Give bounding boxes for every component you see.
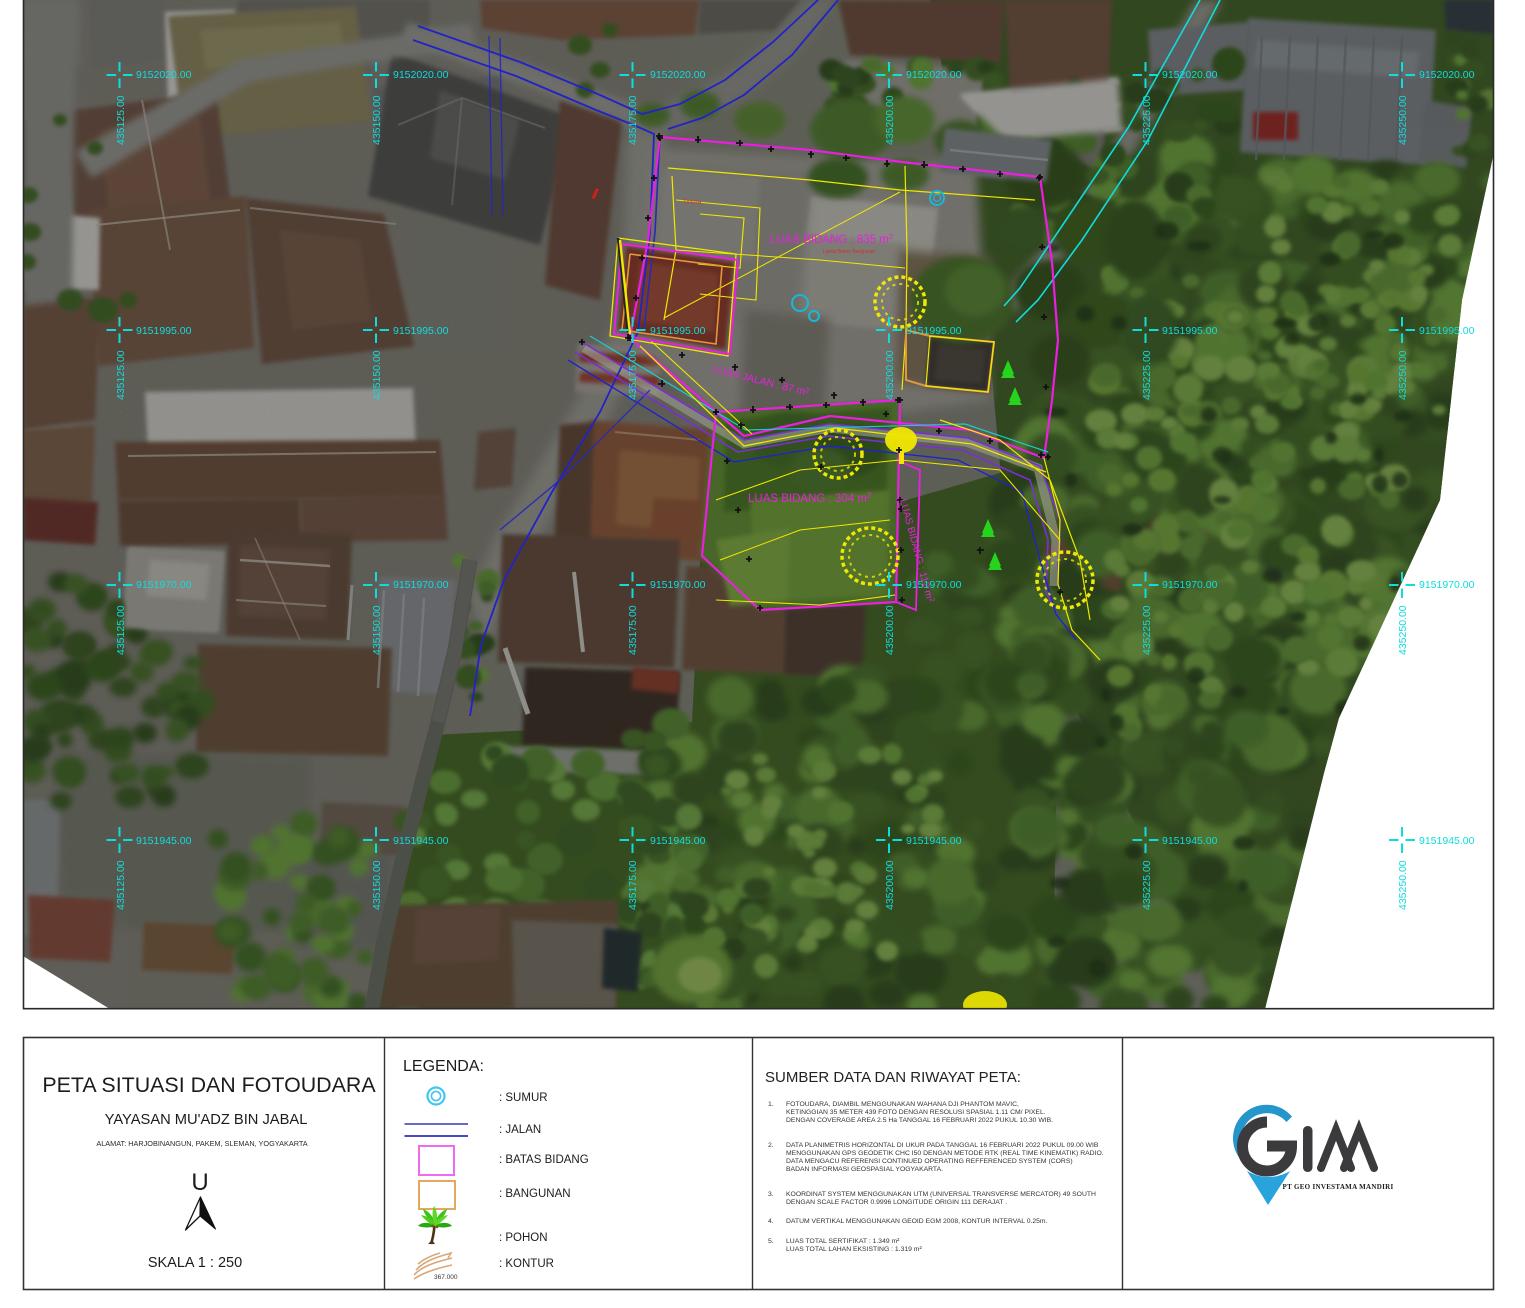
svg-text:BADAN INFORMASI GEOSPASIAL YOG: BADAN INFORMASI GEOSPASIAL YOGYAKARTA. [786, 1166, 943, 1173]
svg-text:LEGENDA:: LEGENDA: [403, 1058, 484, 1075]
svg-text:U: U [191, 1169, 208, 1196]
svg-text:: BANGUNAN: : BANGUNAN [499, 1188, 571, 1200]
svg-text:: KONTUR: : KONTUR [499, 1258, 554, 1270]
svg-text:LUAS TOTAL SERTIFIKAT : 1.349: LUAS TOTAL SERTIFIKAT : 1.349 m² [786, 1238, 900, 1245]
svg-text:KOORDINAT SYSTEM MENGGUNAKAN U: KOORDINAT SYSTEM MENGGUNAKAN UTM (UNIVER… [786, 1191, 1096, 1198]
svg-text:4.: 4. [768, 1218, 774, 1225]
svg-text:PETA SITUASI DAN FOTOUDARA: PETA SITUASI DAN FOTOUDARA [42, 1073, 376, 1097]
svg-text:DATA PLANIMETRIS HORIZONTAL DI: DATA PLANIMETRIS HORIZONTAL DI UKUR PADA… [786, 1142, 1099, 1149]
svg-text:1.: 1. [768, 1101, 774, 1108]
svg-text:DENGAN SCALE FACTOR 0.9996 LON: DENGAN SCALE FACTOR 0.9996 LONGITUDE ORI… [786, 1199, 1007, 1206]
svg-text:367.000: 367.000 [434, 1274, 458, 1281]
svg-text:: SUMUR: : SUMUR [499, 1092, 548, 1104]
svg-text:DATUM VERTIKAL MENGGUNAKAN GEO: DATUM VERTIKAL MENGGUNAKAN GEOID EGM 200… [786, 1218, 1048, 1225]
svg-text:SUMBER DATA DAN RIWAYAT PETA:: SUMBER DATA DAN RIWAYAT PETA: [765, 1069, 1021, 1086]
svg-text:MENGGUNAKAN GPS GEODETIK CHC I: MENGGUNAKAN GPS GEODETIK CHC I50 DENGAN … [786, 1150, 1104, 1157]
svg-text:KETINGGIAN 35 METER 439 FOTO D: KETINGGIAN 35 METER 439 FOTO DENGAN RESO… [786, 1109, 1046, 1116]
svg-text:FOTOUDARA, DIAMBIL MENGGUNAKAN: FOTOUDARA, DIAMBIL MENGGUNAKAN WAHANA DJ… [786, 1101, 1019, 1108]
svg-text:2.: 2. [768, 1142, 774, 1149]
svg-text:5.: 5. [768, 1238, 774, 1245]
svg-text:PT GEO INVESTAMA MANDIRI: PT GEO INVESTAMA MANDIRI [1283, 1183, 1394, 1191]
svg-text:ALAMAT: HARJOBINANGUN, PAKEM,: ALAMAT: HARJOBINANGUN, PAKEM, SLEMAN, YO… [96, 1139, 307, 1148]
svg-text:: BATAS BIDANG: : BATAS BIDANG [499, 1154, 589, 1166]
svg-text:LUAS TOTAL LAHAN EKSISTING : 1: LUAS TOTAL LAHAN EKSISTING : 1.319 m² [786, 1246, 922, 1253]
svg-text:3.: 3. [768, 1191, 774, 1198]
svg-text:YAYASAN MU'ADZ BIN JABAL: YAYASAN MU'ADZ BIN JABAL [105, 1112, 308, 1128]
svg-text:SKALA 1 : 250: SKALA 1 : 250 [148, 1255, 242, 1271]
svg-text:DENGAN COVERAGE AREA 2.5 Ha TA: DENGAN COVERAGE AREA 2.5 Ha TANGGAL 16 F… [786, 1117, 1053, 1124]
svg-text:: POHON: : POHON [499, 1232, 548, 1244]
svg-text:DATA MENGACU REFERENSI CONTINU: DATA MENGACU REFERENSI CONTINUED OPERATI… [786, 1158, 1073, 1165]
svg-text:: JALAN: : JALAN [499, 1124, 541, 1136]
